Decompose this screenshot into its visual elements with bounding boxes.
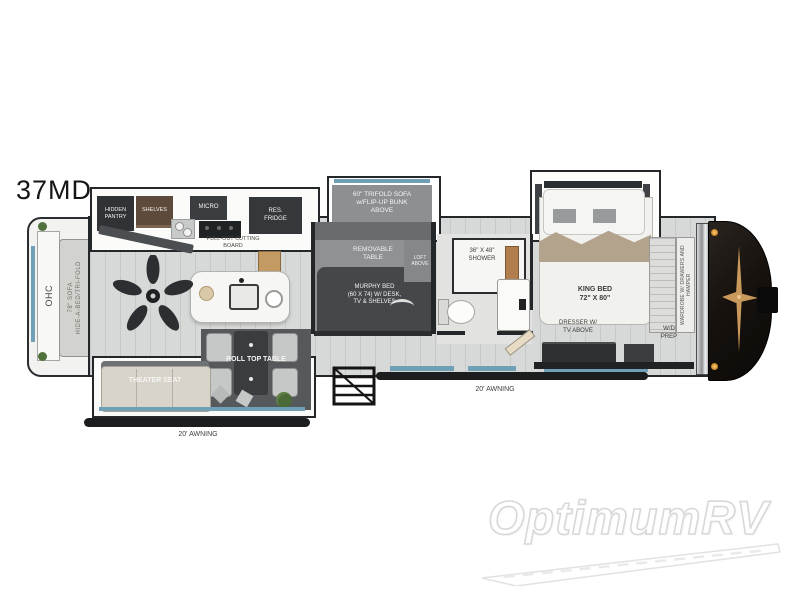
murphy-bed-label: MURPHY BED (60 X 74) W/ DESK, TV & SHELV…	[323, 284, 426, 307]
burner	[205, 226, 209, 230]
faucet	[239, 278, 244, 283]
slide-window-strip	[334, 179, 430, 183]
marker-light	[711, 229, 718, 236]
bathroom-wall	[437, 331, 465, 335]
island-sink	[229, 284, 259, 310]
theater-seat-label: THEATER SEAT	[101, 377, 209, 386]
bathroom-vanity	[497, 279, 530, 331]
wardrobe-label: WARDROBE W/ DRAWERS AND HAMPER	[680, 238, 692, 332]
awning-bar	[84, 418, 310, 427]
micro-label: MICRO	[199, 204, 219, 212]
pantry-shelves: SHELVES	[136, 196, 173, 228]
shower-label: 36" X 48" SHOWER	[454, 248, 510, 263]
wall-window-strip	[390, 366, 454, 371]
slide-window-strip	[99, 407, 305, 411]
brand-emblem-icon	[722, 246, 758, 356]
island-bowl	[199, 286, 214, 301]
hidden-pantry-label: HIDDEN PANTRY	[105, 207, 127, 221]
cutting-board-label: PULL-OUT CUTTING BOARD	[200, 236, 266, 250]
wardrobe: WARDROBE W/ DRAWERS AND HAMPER	[676, 237, 695, 333]
awning-bar	[376, 372, 648, 380]
sink-bowl	[183, 228, 192, 237]
rear-overhead-cabinet: OHC	[37, 231, 60, 361]
awning-label-door: 20' AWNING	[449, 386, 541, 395]
watermark-road-icon	[482, 542, 782, 586]
wd-prep-label: W/D PREP	[653, 326, 685, 341]
bedroom-exterior-wall	[534, 362, 694, 369]
headboard	[544, 181, 642, 188]
hitch-pin-box	[757, 287, 778, 313]
awning-label-rear: 20' AWNING	[152, 431, 244, 440]
rear-sofa-label: 78" SOFA HIDE-A-BED/TRI-FOLD	[68, 261, 84, 335]
burner	[229, 226, 233, 230]
microwave: MICRO	[190, 196, 227, 220]
table-knob	[249, 377, 253, 381]
faucet	[519, 299, 526, 310]
rear-window-strip	[31, 246, 35, 342]
pillow-accent	[553, 209, 576, 223]
entry-steps-icon	[331, 366, 379, 408]
burner	[217, 226, 221, 230]
toilet	[447, 300, 475, 324]
half-wall	[314, 331, 432, 336]
cushion-divider	[172, 369, 173, 409]
dresser-label: DRESSER W/ TV ABOVE	[538, 320, 618, 335]
fridge-label: RES. FRIDGE	[264, 208, 287, 223]
cushion-divider	[136, 369, 137, 409]
island-fixture	[265, 290, 283, 308]
murphy-desk-cabinet	[314, 222, 432, 240]
pillow-accent	[593, 209, 616, 223]
kitchen-sink-counter	[171, 219, 195, 239]
bedroom-cabinet	[624, 344, 654, 362]
theater-seat	[101, 366, 211, 412]
roll-top-table-label: ROLL TOP TABLE	[203, 356, 309, 365]
plant	[276, 392, 292, 408]
interior-wall	[431, 222, 436, 334]
ohc-label: OHC	[44, 285, 54, 307]
king-bed-label: KING BED 72" X 80"	[544, 286, 646, 304]
wardrobe-slats	[649, 237, 676, 333]
kitchen-island	[190, 271, 290, 323]
shelves-label: SHELVES	[142, 207, 167, 214]
watermark-text: OptimumRV	[488, 490, 769, 545]
interior-wall	[311, 222, 315, 334]
wall-window-strip	[468, 366, 516, 371]
trifold-sofa-label: 60" TRIFOLD SOFA w/FLIP-UP BUNK ABOVE	[332, 191, 432, 215]
plant	[38, 352, 47, 361]
table-knob	[249, 343, 253, 347]
watermark: OptimumRV	[482, 490, 790, 586]
floorplan-image: 37MD OHC 78" SOFA HIDE-A-BED/TRI-FOLD HI…	[0, 0, 800, 600]
interior-wall	[530, 234, 533, 310]
plant	[38, 222, 47, 231]
marker-light	[711, 363, 718, 370]
ceiling-fan-icon	[112, 255, 194, 337]
residential-fridge: RES. FRIDGE	[249, 197, 302, 234]
